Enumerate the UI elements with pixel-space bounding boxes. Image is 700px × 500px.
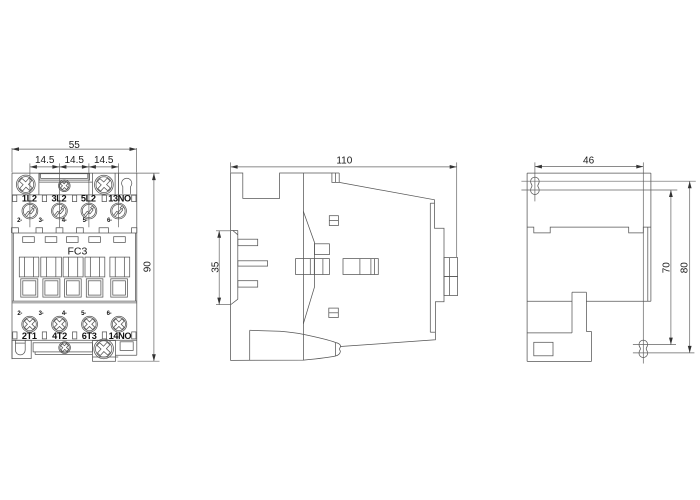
svg-text:4-: 4- [62,311,67,317]
svg-text:3L2: 3L2 [52,193,67,203]
svg-text:14NO: 14NO [109,331,132,341]
svg-text:3-: 3- [39,218,44,224]
svg-text:5-: 5- [83,218,88,224]
svg-text:1L2: 1L2 [22,193,37,203]
svg-text:80: 80 [679,262,690,274]
svg-text:6-: 6- [107,311,112,317]
svg-text:5L2: 5L2 [81,193,96,203]
svg-text:6-: 6- [107,218,112,224]
svg-text:FC3: FC3 [67,245,87,257]
svg-text:5-: 5- [81,311,86,317]
svg-text:35: 35 [211,261,222,273]
svg-text:46: 46 [583,155,595,166]
svg-text:3-: 3- [39,311,44,317]
svg-text:55: 55 [69,140,81,151]
svg-text:110: 110 [336,155,352,166]
svg-text:14.5: 14.5 [64,155,84,166]
svg-text:70: 70 [661,262,672,274]
svg-text:14.5: 14.5 [35,155,55,166]
svg-text:13NO: 13NO [108,193,131,203]
svg-text:4T2: 4T2 [52,331,67,341]
svg-text:14.5: 14.5 [94,155,114,166]
svg-text:90: 90 [143,261,154,273]
svg-text:2-: 2- [17,311,22,317]
svg-text:4-: 4- [62,218,67,224]
svg-text:2T1: 2T1 [22,331,37,341]
svg-text:6T3: 6T3 [82,331,97,341]
svg-text:2-: 2- [17,218,22,224]
